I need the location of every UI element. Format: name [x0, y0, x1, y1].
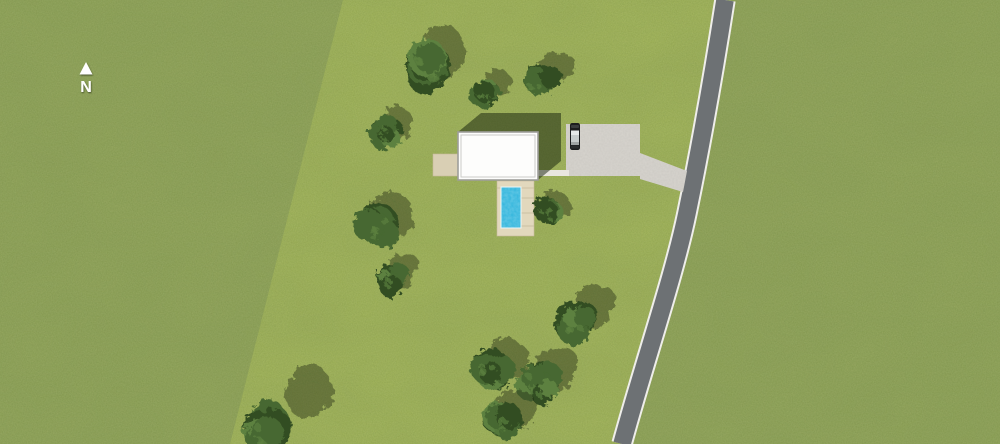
compass-label: N — [80, 79, 92, 96]
car-windshield — [571, 131, 579, 136]
car-roof — [571, 135, 579, 142]
car-hood — [571, 125, 579, 128]
house — [458, 113, 561, 180]
car — [570, 123, 580, 150]
car-trunk — [571, 146, 579, 149]
pool-water-texture — [501, 187, 521, 228]
side-patio — [433, 154, 458, 176]
car-rear-window — [571, 142, 579, 145]
site-plan: N — [0, 0, 1000, 444]
house-roof — [458, 132, 538, 180]
site-plan-canvas: N — [0, 0, 1000, 444]
